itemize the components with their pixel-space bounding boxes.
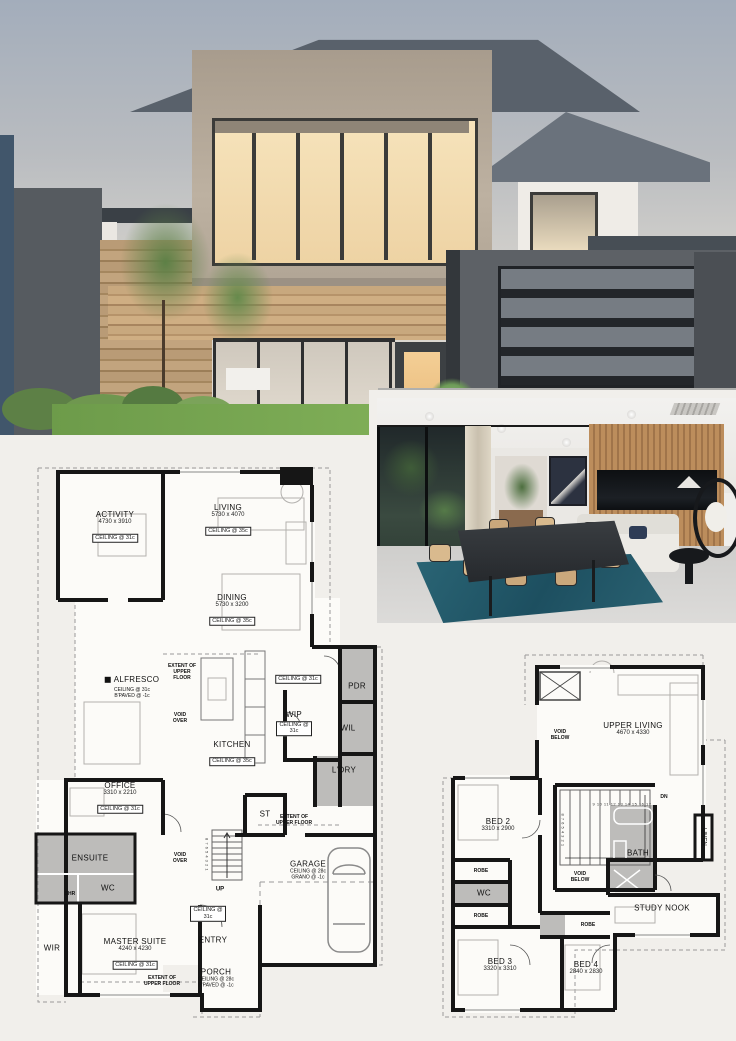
label-bed2: BED 2 3310 x 2900: [481, 817, 514, 833]
house-exterior-photo: [0, 0, 736, 435]
bed2-name: BED 2: [481, 817, 514, 826]
label-office: OFFICE 3310 x 2210 CEILING @ 31c: [97, 781, 143, 815]
dining-name: DINING: [209, 593, 255, 602]
label-wc-upper: WC: [477, 888, 491, 897]
dining-ceiling: CEILING @ 35c: [209, 617, 255, 626]
bed3-dims: 3320 x 3310: [483, 966, 516, 973]
label-upper-living: UPPER LIVING 4670 x 4330: [603, 721, 663, 737]
bed2-dims: 3310 x 2900: [481, 826, 514, 833]
wip-ceiling: CEILING @ 31c: [276, 721, 312, 736]
label-entry-ceiling: CEILING @ 31c: [190, 905, 226, 923]
bed-through-window: [226, 368, 270, 390]
dining-chair-1: [429, 544, 451, 562]
label-extent-kitchen: EXTENT OF UPPER FLOOR: [164, 663, 200, 681]
hall-ceiling: CEILING @ 31c: [275, 675, 321, 684]
wip-name: WIP: [276, 710, 312, 719]
ground-floor-plan: ACTIVITY 4730 x 3910 CEILING @ 31c LIVIN…: [30, 462, 386, 1018]
porch-paved: B'PAVED @ -1c: [198, 983, 234, 989]
alfresco-paved: B'PAVED @ -1c: [105, 693, 160, 699]
label-ensuite: ENSUITE: [72, 853, 109, 862]
upper-window-mullions: [212, 118, 472, 260]
downlight-4: [627, 410, 636, 419]
label-extent-garage: EXTENT OF UPPER FLOOR: [272, 814, 316, 826]
dining-dims: 5730 x 3200: [209, 602, 255, 609]
label-void-over-1: VOID OVER: [169, 712, 191, 724]
label-void-below-2: VOID BELOW: [567, 871, 593, 883]
label-ldry: L'DRY: [332, 765, 356, 774]
upper-living-name: UPPER LIVING: [603, 721, 663, 730]
label-master: MASTER SUITE 4240 x 4230 CEILING @ 31c: [104, 937, 167, 971]
bed4-name: BED 4: [569, 960, 602, 969]
entry-ceiling: CEILING @ 31c: [190, 906, 226, 921]
master-ceiling: CEILING @ 31c: [112, 961, 158, 970]
ground-stair-numbers: 8 7 6 5 4 3 2 1: [204, 831, 209, 879]
upper-stair-numbers-run: 9 10 11 12 13 14 15 16 17: [593, 803, 652, 808]
label-robe-bed4: ROBE: [581, 922, 595, 928]
office-name: OFFICE: [97, 781, 143, 790]
label-living: LIVING 5730 x 4070 CEILING @ 35c: [205, 503, 251, 537]
wall-artwork: [549, 456, 587, 506]
label-pdr: PDR: [348, 681, 366, 690]
porch-name: PORCH: [198, 967, 234, 976]
label-wil: WIL: [340, 723, 355, 732]
label-entry: ENTRY: [199, 935, 227, 944]
office-ceiling: CEILING @ 31c: [97, 805, 143, 814]
label-bed4: BED 4 2840 x 2830: [569, 960, 602, 976]
kitchen-name: KITCHEN: [209, 740, 255, 749]
side-table-base: [685, 558, 693, 584]
label-wir: WIR: [44, 943, 60, 952]
upper-floor-plan: VOID BELOW UPPER LIVING 4670 x 4330 DN 9…: [440, 645, 730, 1023]
tree-canopy-2: [200, 250, 275, 345]
living-ceiling: CEILING @ 35c: [205, 527, 251, 536]
lawn: [52, 404, 382, 435]
sofa-pillow: [629, 526, 647, 539]
ac-vent: [670, 403, 720, 415]
label-robe-bed3: ROBE: [474, 913, 488, 919]
upper-stair-numbers-flight: 8 7 6 5 4 3 2 1: [560, 803, 565, 858]
label-dining: DINING 5730 x 3200 CEILING @ 35c: [209, 593, 255, 627]
activity-dims: 4730 x 3910: [92, 519, 138, 526]
label-bed3: BED 3 3320 x 3310: [483, 957, 516, 973]
label-wip: WIP CEILING @ 31c: [276, 710, 312, 738]
label-activity: ACTIVITY 4730 x 3910 CEILING @ 31c: [92, 510, 138, 544]
label-kitchen: KITCHEN CEILING @ 35c: [209, 740, 255, 768]
label-wc: WC: [101, 883, 115, 892]
bed4-dims: 2840 x 2830: [569, 969, 602, 976]
label-st: ST: [260, 809, 271, 818]
office-dims: 3310 x 2210: [97, 790, 143, 797]
egg-chair-cushion: [705, 502, 727, 532]
living-dims: 5730 x 4070: [205, 512, 251, 519]
table-leg-2: [592, 560, 595, 602]
label-linen: LINEN: [700, 817, 707, 857]
label-dn: DN: [660, 794, 667, 800]
label-up: UP: [216, 887, 224, 894]
kitchen-ceiling: CEILING @ 35c: [209, 757, 255, 766]
garage-door: [498, 266, 700, 388]
upper-window-shadow: [215, 121, 469, 133]
label-robe-bed2: ROBE: [474, 868, 488, 874]
label-garage: GARAGE CEILING @ 28c GRANO @ -1c: [290, 859, 326, 880]
pin-image: ACTIVITY 4730 x 3910 CEILING @ 31c LIVIN…: [0, 0, 736, 1041]
indoor-plant: [503, 462, 541, 512]
bed3-name: BED 3: [483, 957, 516, 966]
master-dims: 4240 x 4230: [104, 946, 167, 953]
living-name: LIVING: [205, 503, 251, 512]
alfresco-bullet-icon: [105, 677, 111, 683]
label-alfresco: ALFRESCO CEILING @ 31c B'PAVED @ -1c: [105, 669, 160, 699]
label-shr: SHR: [65, 891, 76, 897]
master-name: MASTER SUITE: [104, 937, 167, 946]
interior-photo: [377, 398, 736, 623]
activity-ceiling: CEILING @ 31c: [92, 534, 138, 543]
upper-living-dims: 4670 x 4330: [603, 730, 663, 737]
label-hall-ceiling: CEILING @ 31c: [275, 667, 321, 685]
left-edge-structure: [0, 135, 14, 435]
curtain-rod: [377, 425, 607, 427]
right-roof: [470, 112, 710, 182]
label-extent-master: EXTENT OF UPPER FLOOR: [140, 975, 184, 987]
label-study-nook: STUDY NOOK: [634, 903, 690, 912]
alfresco-name: ALFRESCO: [105, 675, 160, 684]
tree-canopy-1: [118, 200, 213, 325]
label-void-over-2: VOID OVER: [169, 852, 191, 864]
label-void-below-1: VOID BELOW: [547, 729, 573, 741]
table-leg-1: [489, 576, 492, 616]
downlight-1: [425, 412, 434, 421]
downlight-3: [562, 438, 571, 447]
activity-name: ACTIVITY: [92, 510, 138, 519]
label-porch: PORCH CEILING @ 28c B'PAVED @ -1c: [198, 967, 234, 988]
label-bath: BATH: [627, 848, 649, 857]
garage-grano: GRANO @ -1c: [290, 875, 326, 881]
garage-name: GARAGE: [290, 859, 326, 868]
